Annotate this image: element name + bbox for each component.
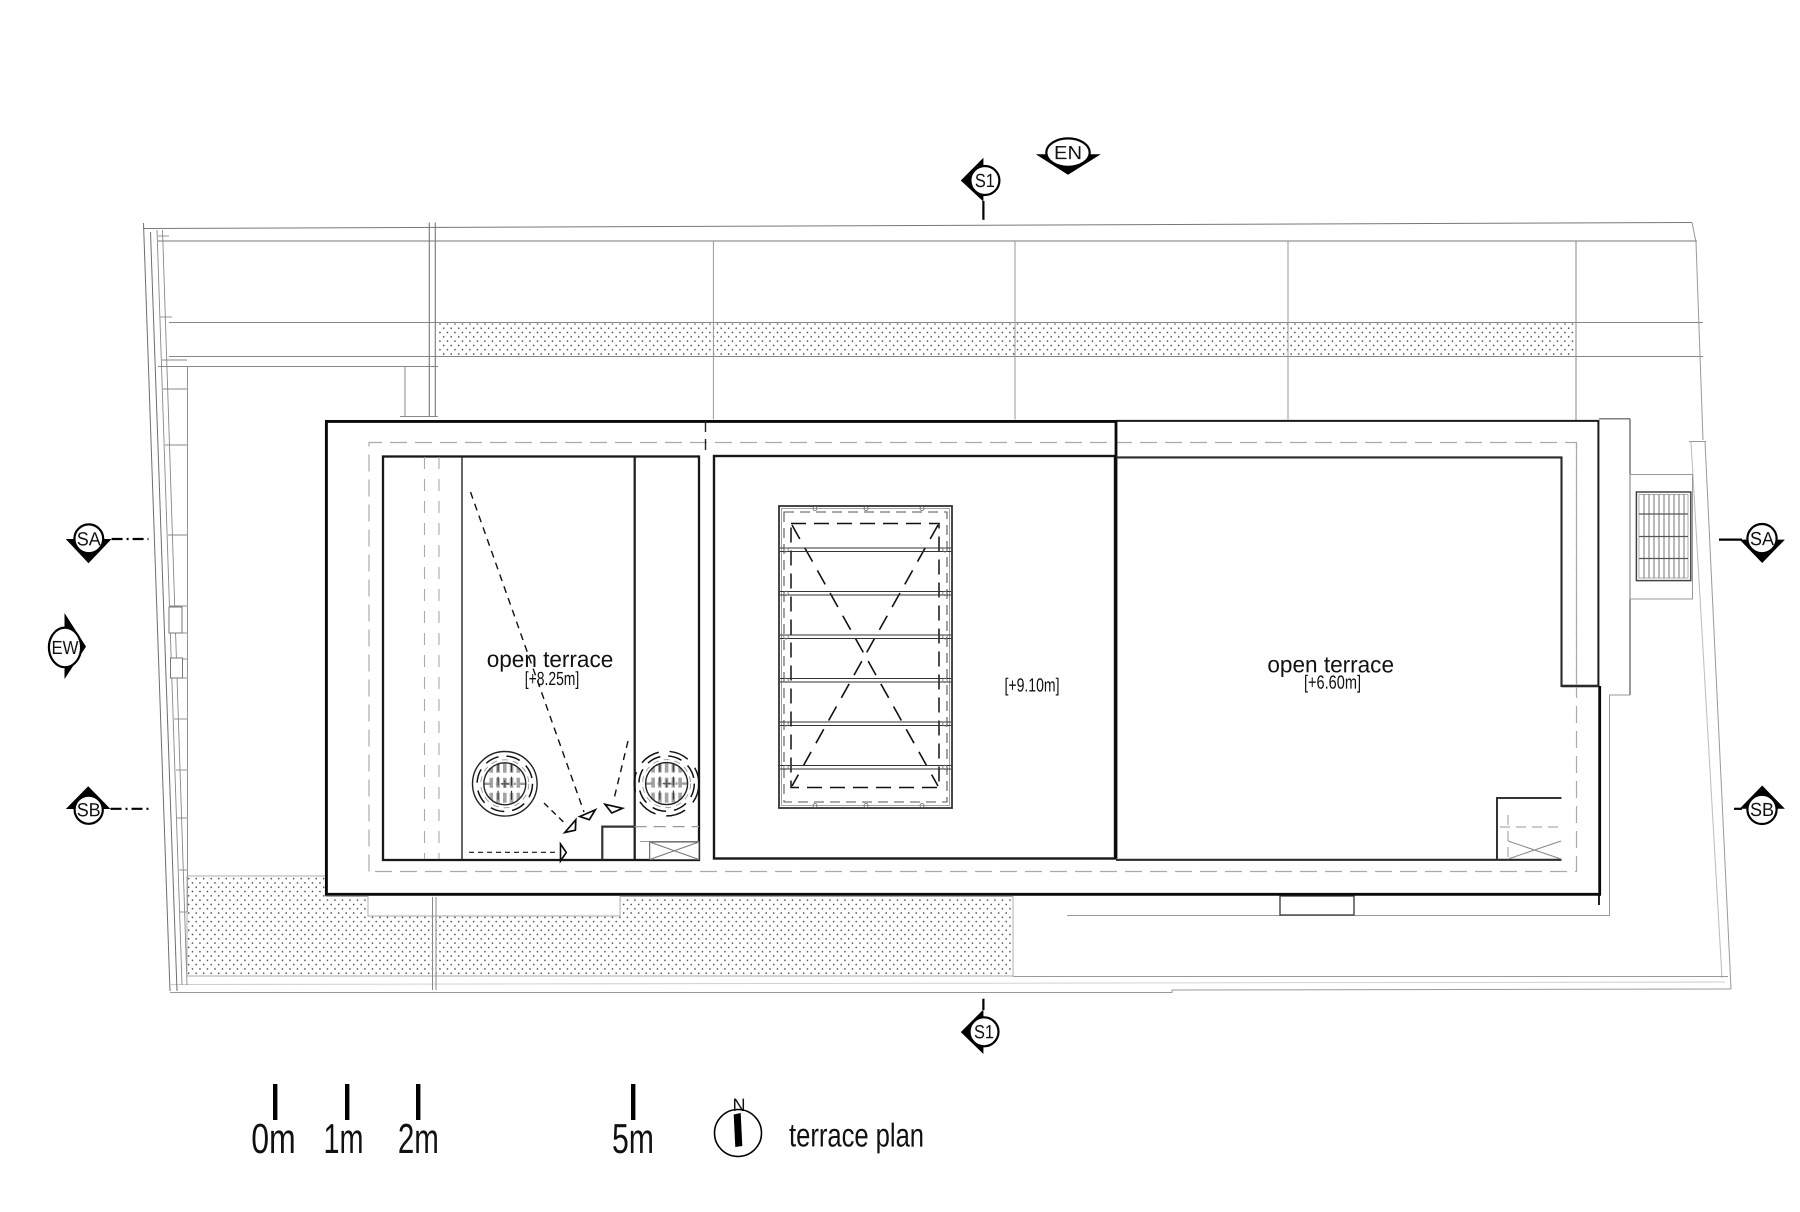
svg-text:EN: EN xyxy=(1054,143,1082,164)
svg-text:N: N xyxy=(732,1095,745,1115)
svg-text:SA: SA xyxy=(77,529,101,550)
svg-text:SB: SB xyxy=(77,800,101,821)
svg-text:EW: EW xyxy=(51,638,78,659)
svg-text:2m: 2m xyxy=(398,1115,439,1162)
svg-text:0m: 0m xyxy=(251,1115,296,1162)
svg-text:SB: SB xyxy=(1750,800,1774,821)
svg-text:SA: SA xyxy=(1750,529,1774,550)
svg-text:terrace plan: terrace plan xyxy=(789,1116,924,1153)
svg-text:1m: 1m xyxy=(323,1115,363,1162)
svg-text:S1: S1 xyxy=(974,1022,994,1043)
svg-text:5m: 5m xyxy=(612,1115,654,1162)
svg-text:[+9.10m]: [+9.10m] xyxy=(1004,675,1059,696)
svg-text:S1: S1 xyxy=(975,171,995,192)
svg-text:[+6.60m]: [+6.60m] xyxy=(1304,673,1361,694)
svg-text:[+8.25m]: [+8.25m] xyxy=(525,669,580,690)
